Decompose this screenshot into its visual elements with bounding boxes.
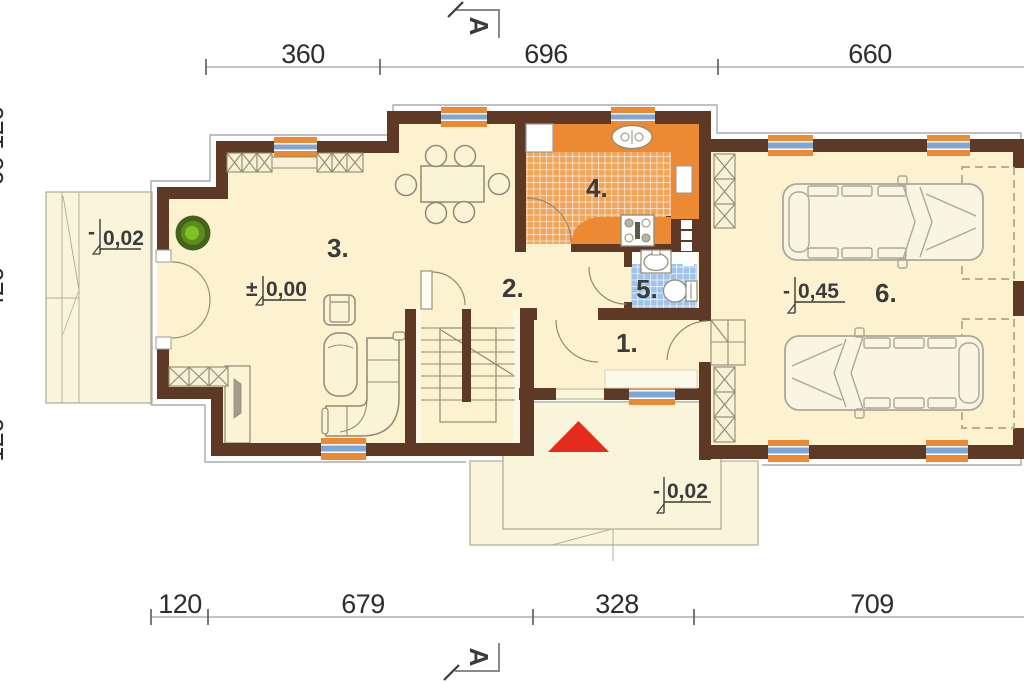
svg-text:4.: 4. [586, 173, 608, 203]
svg-text:±: ± [246, 278, 258, 301]
svg-text:120: 120 [158, 589, 202, 619]
svg-text:709: 709 [850, 589, 894, 619]
svg-text:120: 120 [0, 418, 9, 462]
svg-text:328: 328 [595, 589, 639, 619]
svg-text:2.: 2. [502, 273, 524, 303]
svg-text:-: - [653, 480, 660, 503]
svg-text:360: 360 [281, 39, 325, 69]
svg-text:0,02: 0,02 [103, 227, 144, 250]
svg-text:A: A [464, 648, 494, 667]
svg-text:696: 696 [524, 39, 568, 69]
svg-text:0,45: 0,45 [798, 280, 839, 303]
svg-text:660: 660 [848, 39, 892, 69]
svg-text:1.: 1. [616, 328, 638, 358]
svg-text:3.: 3. [327, 233, 349, 263]
svg-text:0,02: 0,02 [667, 480, 708, 503]
svg-text:0,00: 0,00 [266, 278, 307, 301]
svg-text:-: - [88, 221, 95, 244]
svg-text:679: 679 [341, 589, 385, 619]
svg-text:6.: 6. [875, 278, 897, 308]
svg-text:420: 420 [0, 267, 9, 311]
svg-text:5.: 5. [636, 274, 658, 304]
svg-text:60 120: 60 120 [0, 106, 9, 186]
svg-text:-: - [783, 280, 790, 303]
svg-text:A: A [464, 17, 494, 36]
